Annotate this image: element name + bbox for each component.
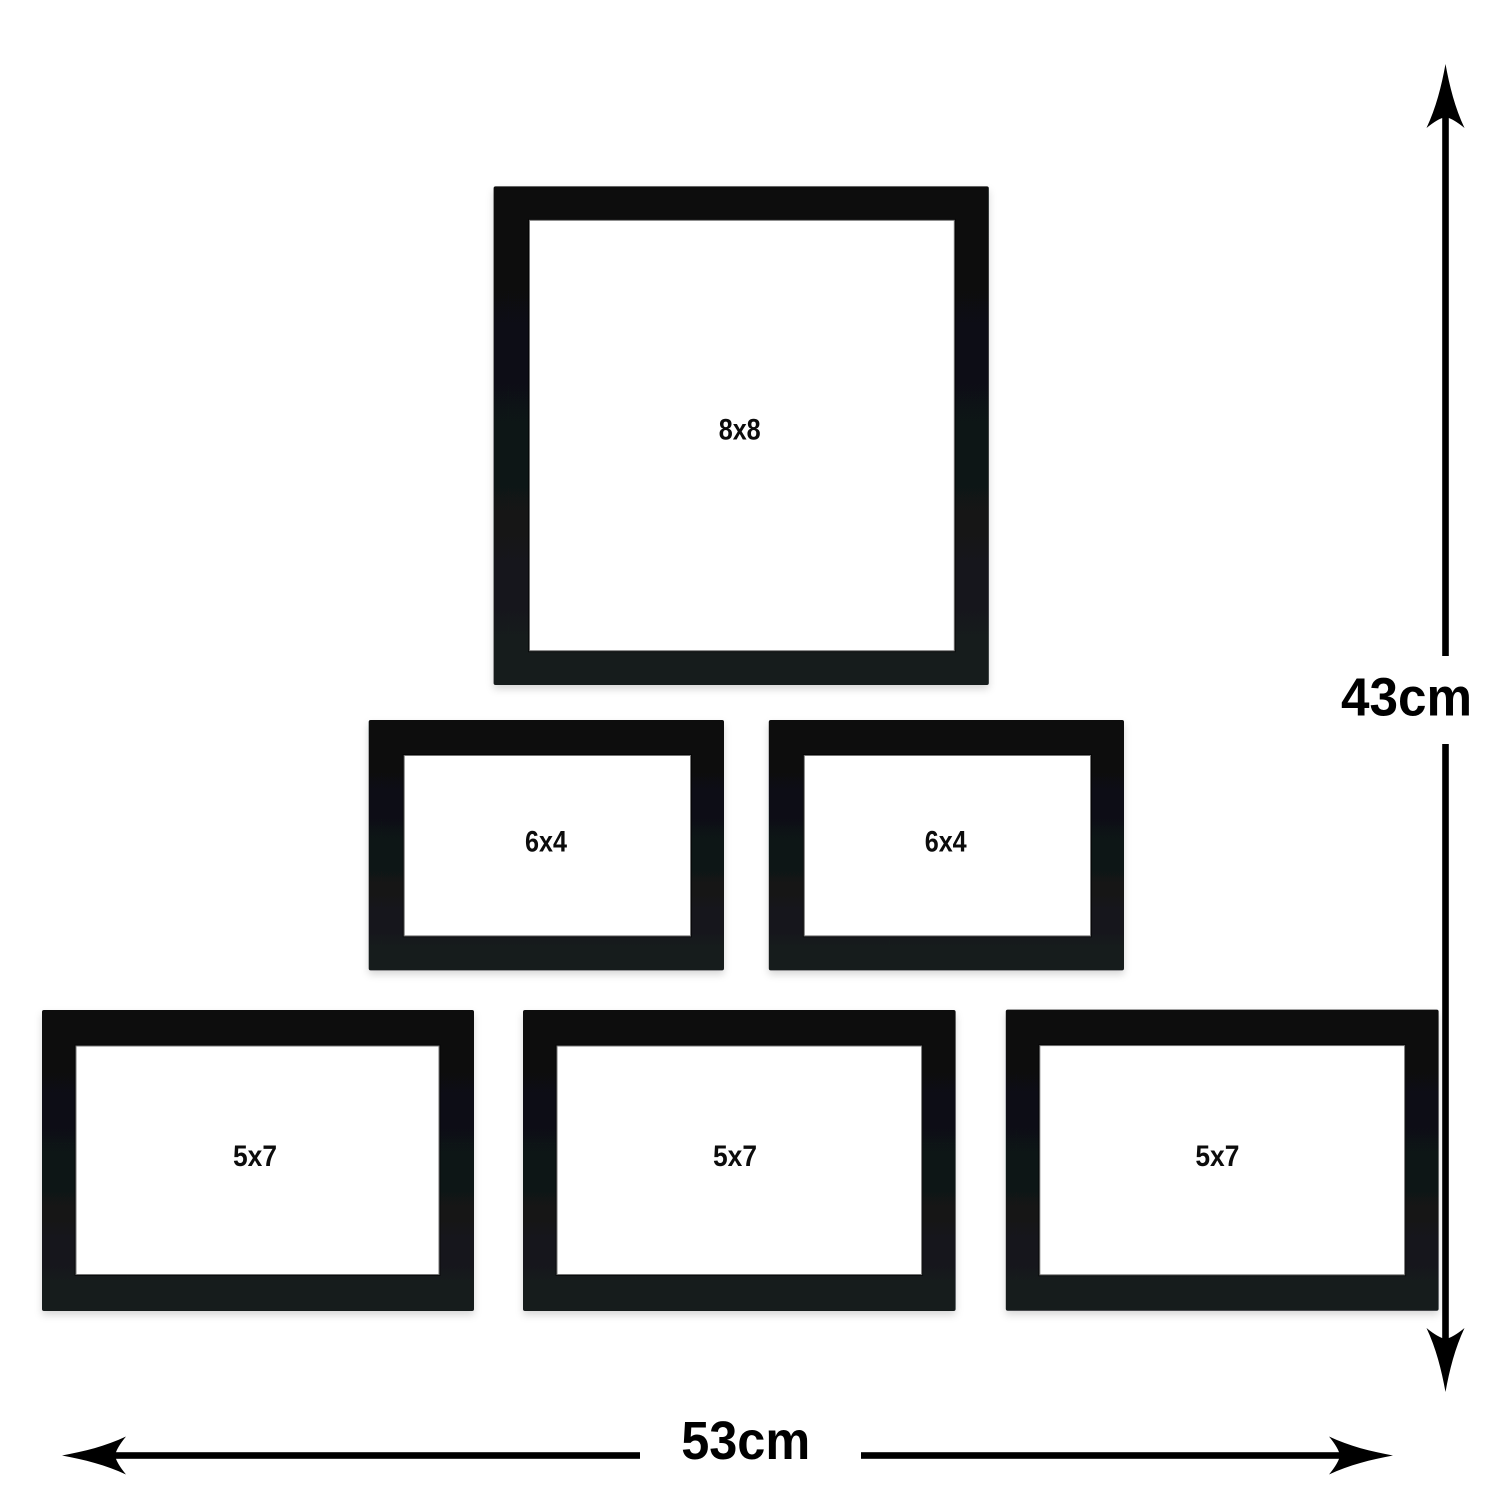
svg-text:8x8: 8x8 <box>719 414 761 447</box>
svg-text:5x7: 5x7 <box>713 1140 757 1173</box>
svg-text:6x4: 6x4 <box>925 826 967 859</box>
svg-text:53cm: 53cm <box>681 1411 810 1471</box>
svg-text:43cm: 43cm <box>1341 668 1472 728</box>
svg-text:6x4: 6x4 <box>525 826 567 859</box>
svg-text:5x7: 5x7 <box>233 1140 277 1173</box>
svg-text:5x7: 5x7 <box>1195 1140 1239 1173</box>
